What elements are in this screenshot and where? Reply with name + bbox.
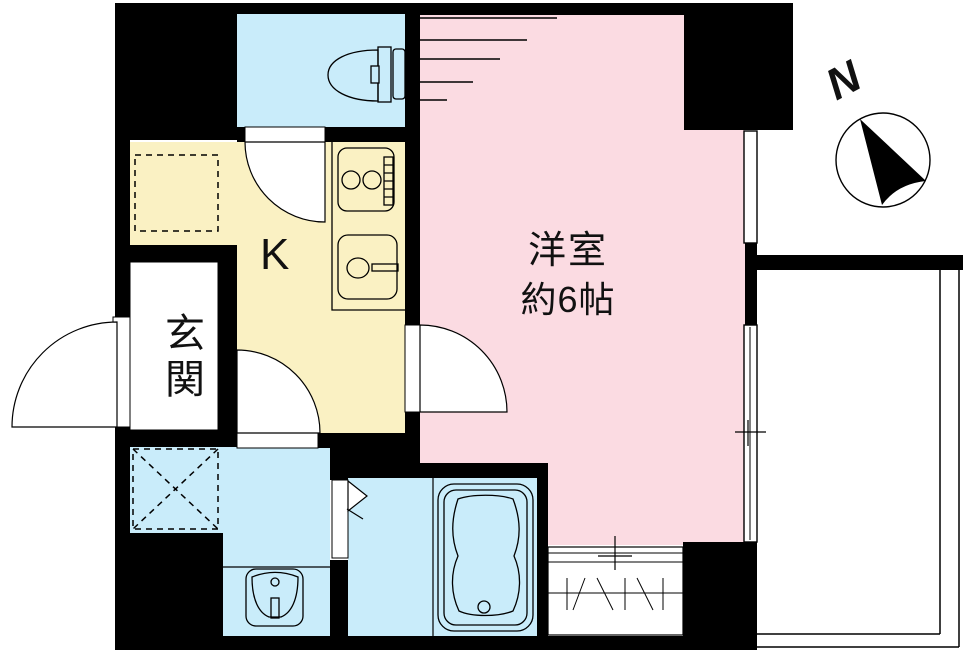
wall-segment <box>330 560 348 636</box>
room-label-western: 洋室 約6帖 <box>478 226 658 324</box>
wall-segment <box>115 430 237 447</box>
washroom-door-leaf <box>237 433 318 448</box>
balcony-railing <box>757 270 959 647</box>
window-upper-icon <box>744 131 757 243</box>
toilet-door-leaf <box>245 127 325 142</box>
wall-segment <box>684 3 793 130</box>
wall-segment <box>115 533 223 650</box>
wall-segment <box>218 262 237 433</box>
wall-segment <box>405 14 420 325</box>
wall-segment <box>115 262 130 317</box>
wall-segment <box>237 127 245 142</box>
wall-segment <box>115 3 237 140</box>
wall-segment <box>537 465 548 636</box>
shutter-window-icon <box>548 536 683 635</box>
wall-segment <box>237 3 405 14</box>
toilet-room-floor <box>237 14 405 127</box>
wall-segment <box>115 636 757 650</box>
western-room-size: 約6帖 <box>478 276 658 324</box>
wall-segment <box>683 542 757 636</box>
floorplan-drawing <box>0 0 968 656</box>
toilet-flush-notch <box>371 66 379 83</box>
compass-icon <box>836 113 930 207</box>
wall-segment <box>330 448 348 480</box>
wall-segment <box>755 255 963 270</box>
room-label-kitchen: K <box>260 230 289 280</box>
wall-segment <box>325 127 405 142</box>
wall-segment <box>405 3 684 15</box>
room-label-entrance: 玄関 <box>152 312 210 404</box>
wall-segment <box>115 140 130 262</box>
wall-segment <box>115 245 237 262</box>
bathroom-door-opening <box>332 480 348 558</box>
western-room-name: 洋室 <box>528 230 608 272</box>
floorplan: 洋室 約6帖 K 玄関 N <box>0 0 968 656</box>
wall-segment <box>420 463 548 478</box>
entrance-door-arc-icon <box>12 322 117 427</box>
room-door-leaf <box>405 325 420 412</box>
